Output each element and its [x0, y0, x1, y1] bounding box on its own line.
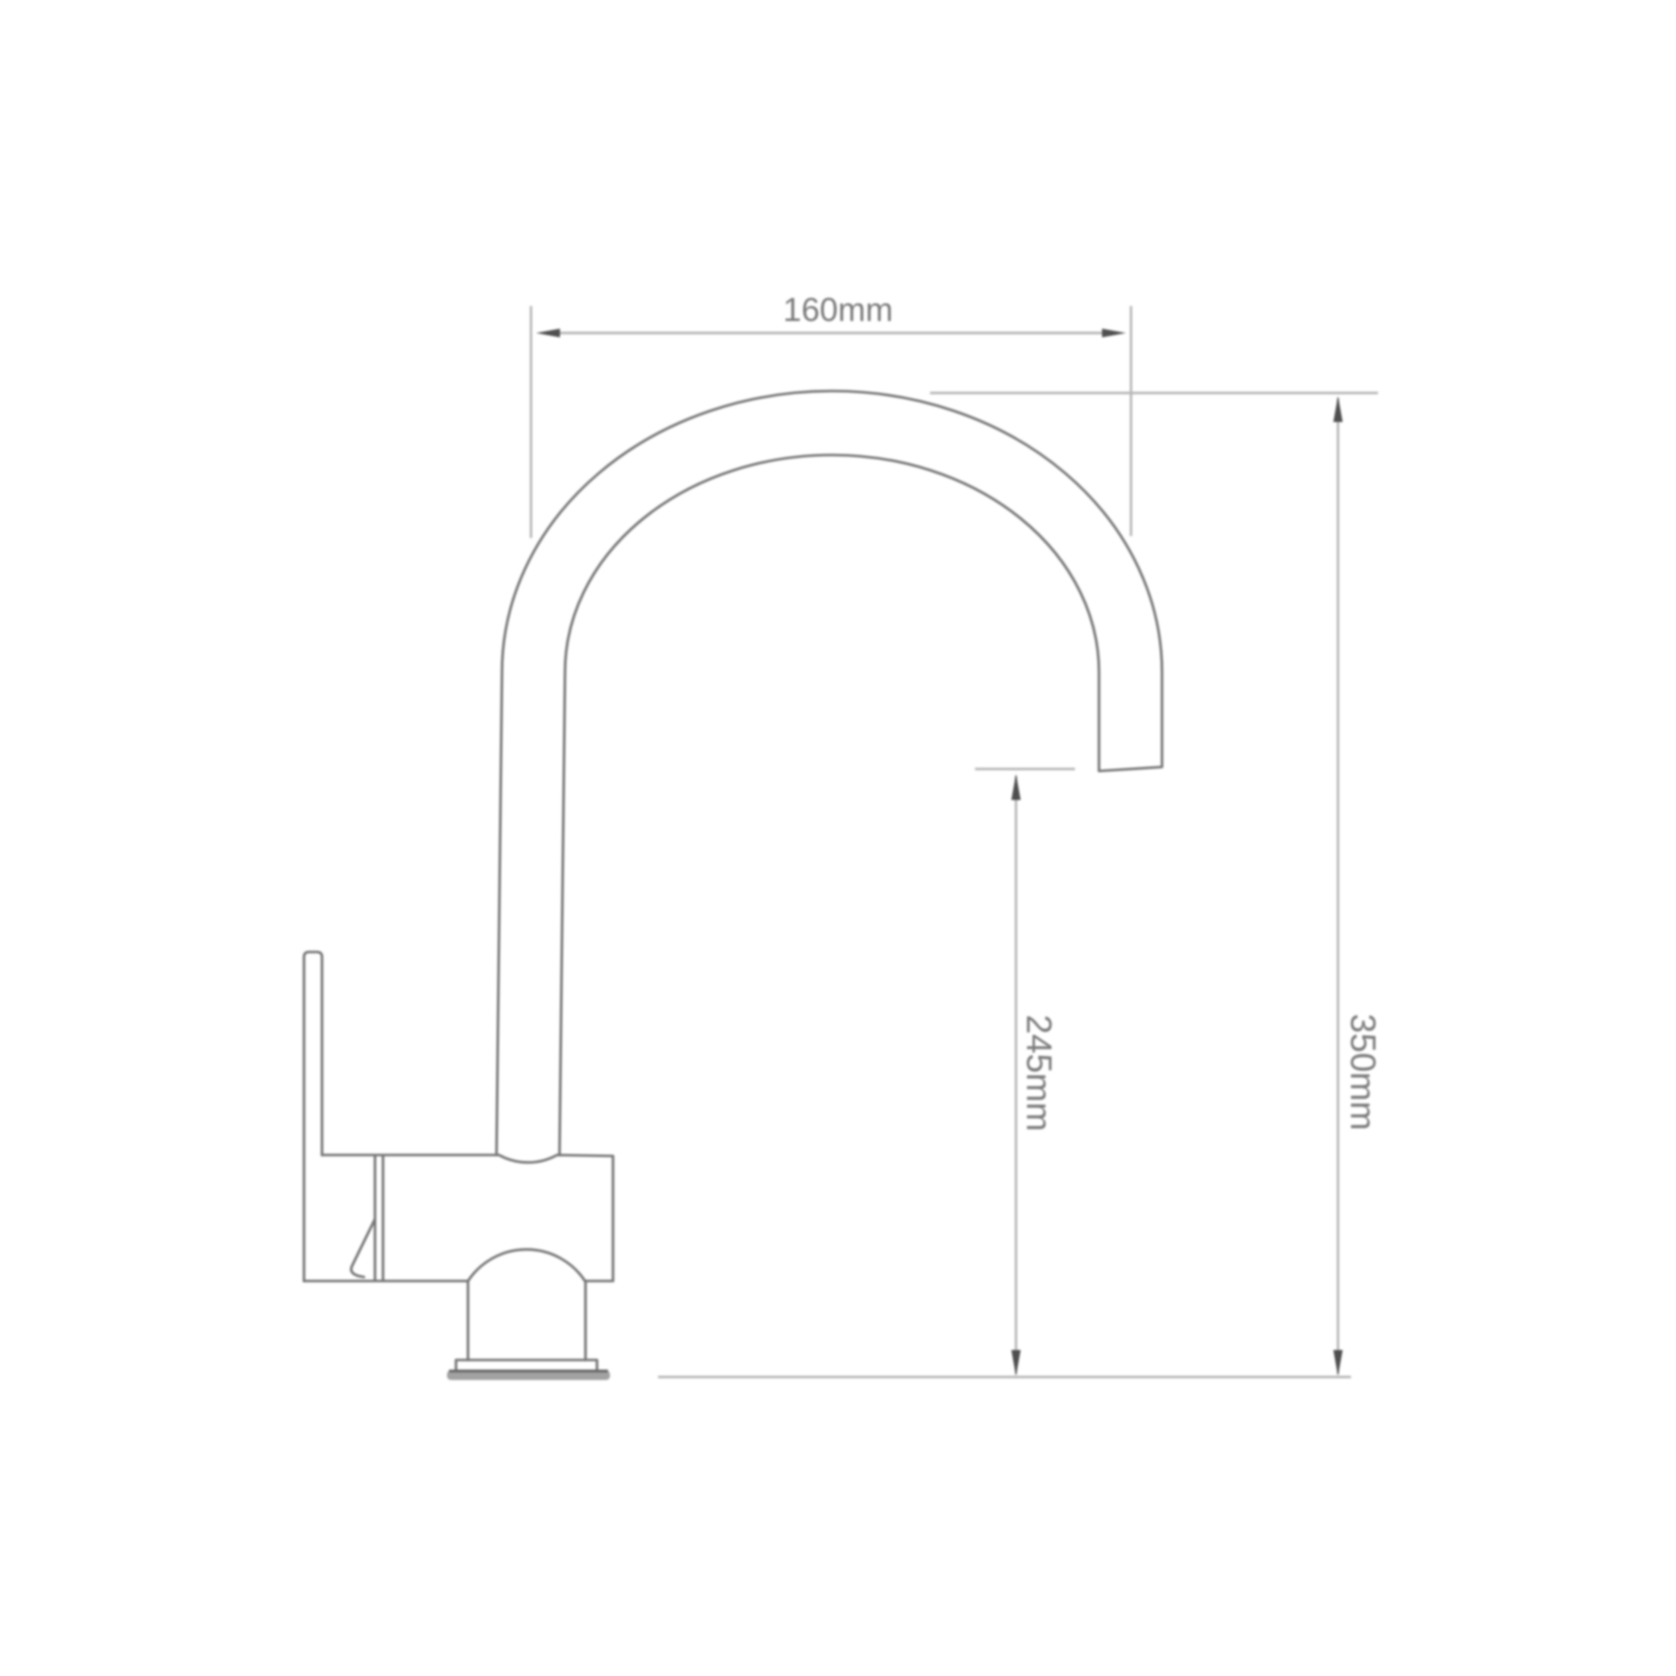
svg-text:245mm: 245mm	[1019, 1015, 1058, 1132]
svg-text:350mm: 350mm	[1343, 1014, 1382, 1131]
svg-text:160mm: 160mm	[783, 291, 893, 328]
